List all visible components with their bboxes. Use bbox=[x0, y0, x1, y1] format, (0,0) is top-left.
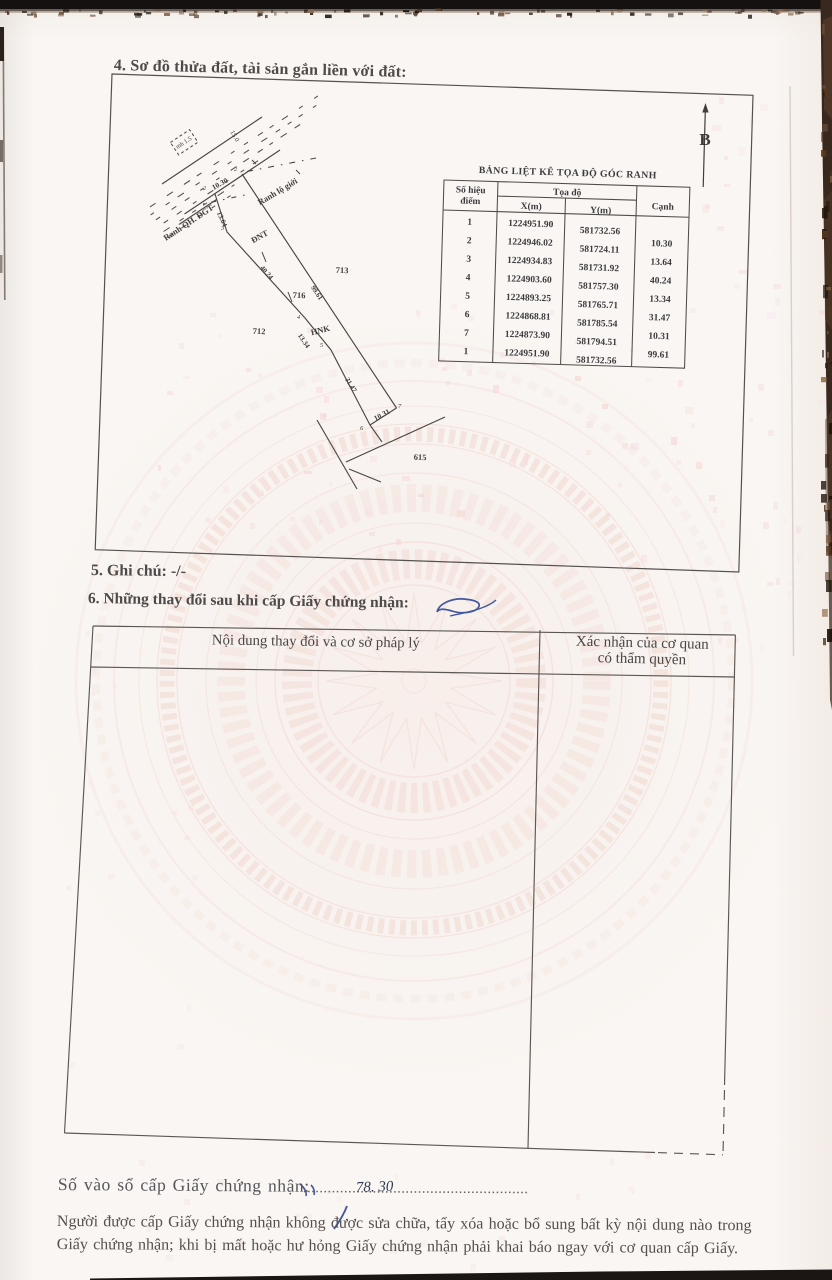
svg-text:Số hiệu: Số hiệu bbox=[456, 184, 487, 196]
svg-text:581732.56: 581732.56 bbox=[576, 355, 617, 366]
svg-text:15.0: 15.0 bbox=[228, 129, 240, 143]
svg-text:X(m): X(m) bbox=[521, 201, 542, 213]
svg-text:6: 6 bbox=[360, 425, 364, 432]
svg-text:1224934.83: 1224934.83 bbox=[507, 256, 553, 267]
svg-text:2: 2 bbox=[234, 166, 237, 173]
svg-text:2: 2 bbox=[203, 185, 206, 192]
svg-text:716: 716 bbox=[293, 290, 306, 300]
svg-text:40.24: 40.24 bbox=[258, 264, 275, 282]
svg-text:13.34: 13.34 bbox=[296, 332, 312, 350]
svg-text:99.61: 99.61 bbox=[648, 350, 670, 361]
svg-text:99.61: 99.61 bbox=[309, 284, 325, 302]
svg-text:BẢNG LIỆT KÊ TỌA ĐỘ GÓC RANH: BẢNG LIỆT KÊ TỌA ĐỘ GÓC RANH bbox=[479, 163, 657, 181]
svg-text:3: 3 bbox=[466, 255, 471, 265]
svg-text:5: 5 bbox=[465, 292, 470, 302]
svg-text:6: 6 bbox=[464, 310, 469, 320]
svg-text:713: 713 bbox=[336, 265, 349, 275]
svg-text:7: 7 bbox=[398, 403, 402, 410]
svg-text:40.24: 40.24 bbox=[650, 276, 672, 287]
svg-text:mh 1.5: mh 1.5 bbox=[175, 135, 193, 150]
svg-text:1224951.90: 1224951.90 bbox=[504, 348, 550, 359]
svg-text:10.30: 10.30 bbox=[210, 176, 229, 192]
svg-text:581765.71: 581765.71 bbox=[578, 300, 619, 311]
svg-text:1224903.60: 1224903.60 bbox=[506, 274, 552, 285]
svg-text:615: 615 bbox=[414, 452, 427, 462]
svg-text:581785.54: 581785.54 bbox=[577, 319, 618, 330]
svg-text:1224951.90: 1224951.90 bbox=[508, 219, 554, 230]
svg-text:581732.56: 581732.56 bbox=[580, 226, 621, 237]
svg-text:B: B bbox=[699, 130, 710, 149]
svg-text:13.34: 13.34 bbox=[649, 295, 671, 306]
svg-text:581794.51: 581794.51 bbox=[576, 337, 617, 348]
svg-text:31.47: 31.47 bbox=[649, 313, 671, 324]
svg-text:1224868.81: 1224868.81 bbox=[505, 311, 551, 322]
svg-text:10.31: 10.31 bbox=[372, 407, 391, 423]
svg-text:4: 4 bbox=[297, 314, 300, 321]
svg-text:5: 5 bbox=[320, 342, 323, 349]
svg-text:Ranh lộ giới: Ranh lộ giới bbox=[256, 175, 300, 207]
svg-text:1224946.02: 1224946.02 bbox=[507, 237, 553, 248]
svg-text:2: 2 bbox=[467, 236, 472, 246]
svg-text:Cạnh: Cạnh bbox=[652, 202, 675, 213]
svg-text:581757.30: 581757.30 bbox=[578, 282, 619, 293]
svg-text:7: 7 bbox=[464, 329, 469, 339]
svg-text:4: 4 bbox=[466, 273, 471, 283]
svg-text:10.31: 10.31 bbox=[648, 332, 670, 343]
svg-text:Y(m): Y(m) bbox=[590, 205, 611, 217]
svg-text:31.47: 31.47 bbox=[343, 376, 358, 394]
svg-text:1: 1 bbox=[467, 218, 472, 228]
svg-text:581731.92: 581731.92 bbox=[579, 263, 620, 274]
svg-text:Tọa độ: Tọa độ bbox=[553, 188, 582, 199]
svg-text:1224893.25: 1224893.25 bbox=[506, 293, 552, 304]
svg-text:điểm: điểm bbox=[460, 195, 480, 207]
svg-text:712: 712 bbox=[253, 326, 266, 336]
svg-text:Ranh QH. ĐGT: Ranh QH. ĐGT bbox=[161, 202, 215, 242]
svg-text:1224873.90: 1224873.90 bbox=[505, 330, 551, 341]
svg-text:HNK: HNK bbox=[310, 323, 332, 337]
svg-text:ĐNT: ĐNT bbox=[249, 227, 270, 245]
svg-text:1: 1 bbox=[463, 347, 468, 357]
svg-text:581724.11: 581724.11 bbox=[579, 245, 619, 256]
svg-text:13.64: 13.64 bbox=[650, 258, 672, 269]
svg-text:13.64: 13.64 bbox=[215, 210, 229, 228]
svg-text:10.30: 10.30 bbox=[651, 239, 673, 250]
